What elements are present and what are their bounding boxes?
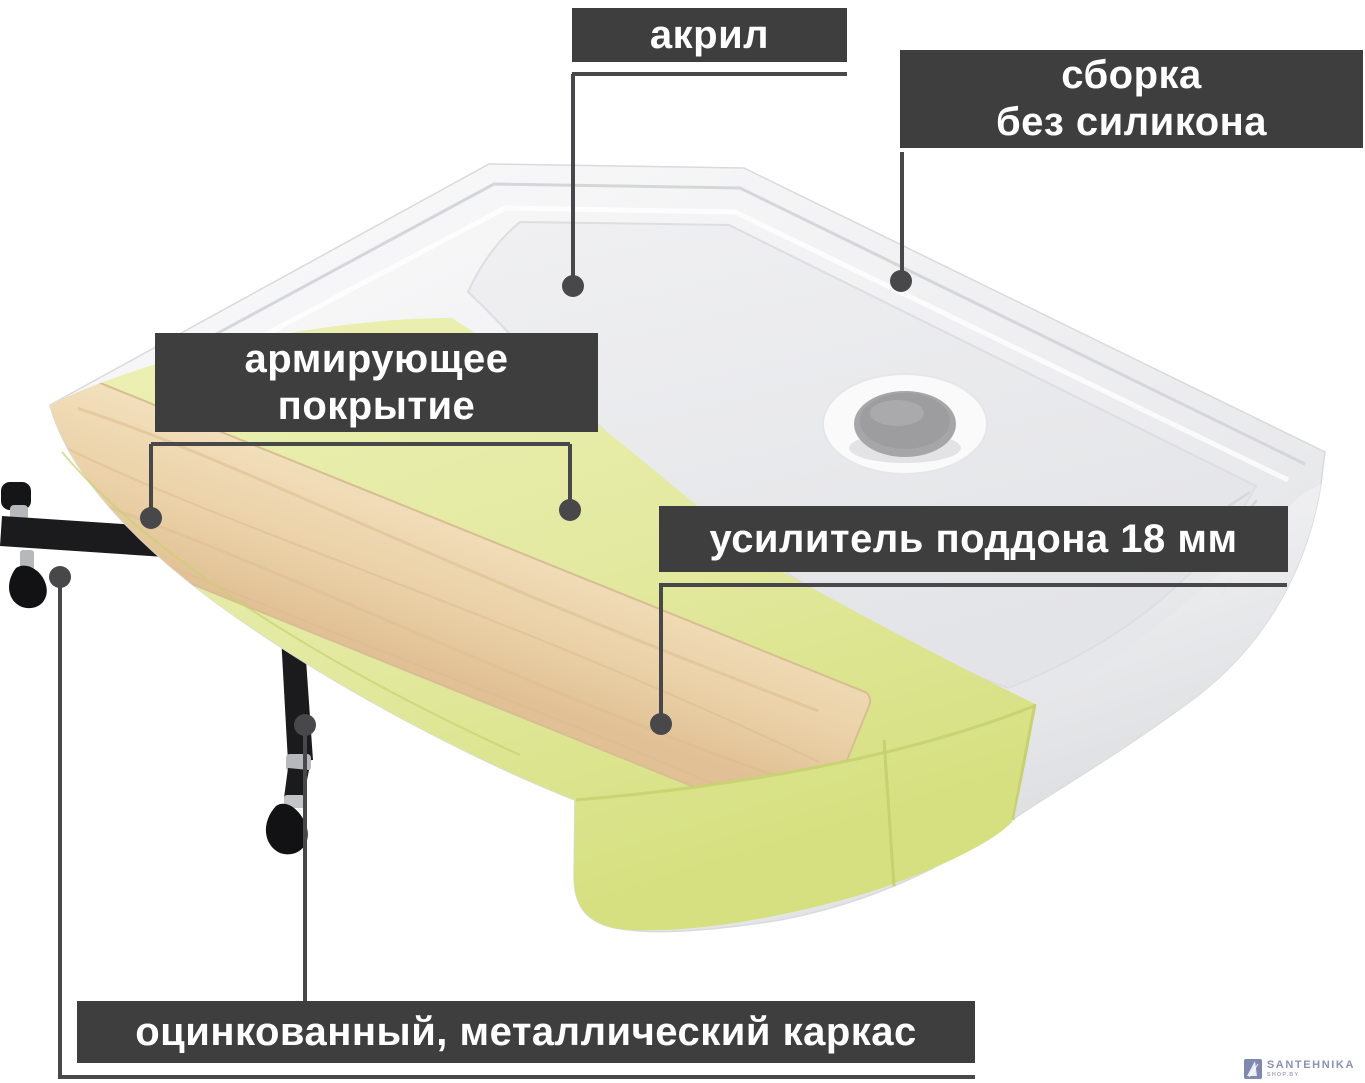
callout-acrylic: акрил bbox=[572, 8, 847, 62]
callout-metal-frame: оцинкованный, металлический каркас bbox=[77, 1001, 975, 1063]
callout-coating-line2: покрытие bbox=[278, 383, 476, 430]
callout-acrylic-text: акрил bbox=[650, 12, 769, 59]
watermark-brand: SANTEHNIKA bbox=[1267, 1060, 1355, 1071]
callout-coating-line1: армирующее bbox=[245, 336, 509, 383]
dot-coating-right bbox=[559, 499, 581, 521]
watermark: SANTEHNIKA SHOP.BY bbox=[1244, 1059, 1355, 1079]
dot-coating-left bbox=[140, 507, 162, 529]
drain bbox=[823, 374, 987, 474]
dot-frame-left bbox=[49, 566, 71, 588]
watermark-sub: SHOP.BY bbox=[1267, 1073, 1355, 1079]
dot-frame-right bbox=[294, 714, 316, 736]
callout-assembly-line2: без силикона bbox=[996, 99, 1267, 146]
dot-stiffener bbox=[650, 713, 672, 735]
callout-assembly-line1: сборка bbox=[1061, 52, 1202, 99]
frame-leg-foot bbox=[266, 804, 308, 855]
callout-assembly-no-silicone: сборка без силикона bbox=[900, 50, 1363, 148]
santehnika-logo-icon bbox=[1244, 1059, 1262, 1079]
callout-frame-text: оцинкованный, металлический каркас bbox=[135, 1009, 917, 1056]
callout-reinforcing-coating: армирующее покрытие bbox=[155, 333, 598, 432]
dot-assembly bbox=[890, 270, 912, 292]
callout-tray-stiffener: усилитель поддона 18 мм bbox=[659, 506, 1288, 572]
frame-foot-bottom bbox=[9, 566, 47, 609]
watermark-text: SANTEHNIKA SHOP.BY bbox=[1267, 1060, 1355, 1079]
infographic-stage: акрил сборка без силикона армирующее пок… bbox=[0, 0, 1365, 1083]
dot-acrylic bbox=[562, 275, 584, 297]
callout-stiffener-text: усилитель поддона 18 мм bbox=[709, 516, 1237, 563]
